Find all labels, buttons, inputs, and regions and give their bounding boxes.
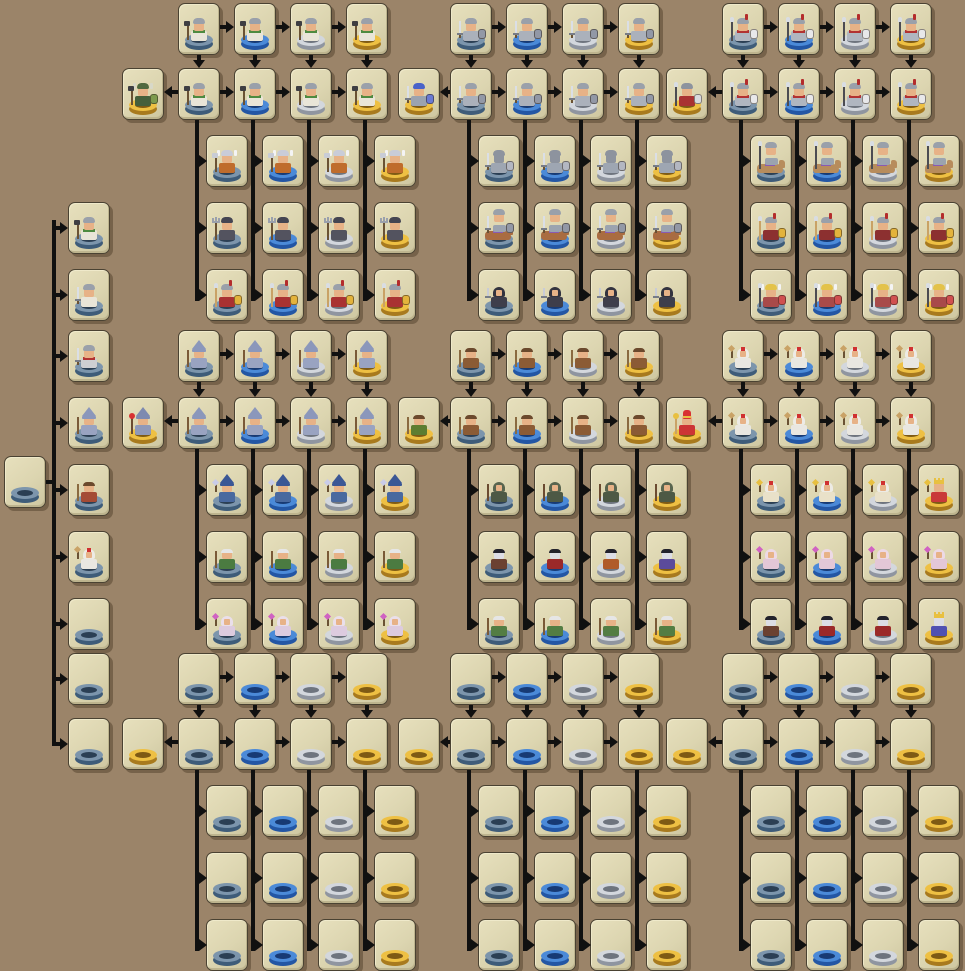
unit-card-cavalry[interactable] xyxy=(590,202,632,254)
empty-unit-card[interactable] xyxy=(806,852,848,904)
empty-unit-card[interactable] xyxy=(834,718,876,770)
unit-card-dark_trident[interactable] xyxy=(206,202,248,254)
unit-card-ranger[interactable] xyxy=(646,464,688,516)
unit-card-green_elder[interactable] xyxy=(318,531,360,583)
unit-card-druid[interactable] xyxy=(506,330,548,382)
weapon-staff xyxy=(571,417,573,434)
ring-hole xyxy=(903,687,919,693)
unit-card-valkyrie[interactable] xyxy=(750,269,792,321)
empty-unit-card[interactable] xyxy=(618,718,660,770)
unit-card-elder_druid[interactable] xyxy=(590,598,632,650)
unit-card-cleric[interactable] xyxy=(778,397,820,449)
empty-unit-card[interactable] xyxy=(590,785,632,837)
weapon-spear-tip xyxy=(674,82,678,87)
root-card[interactable] xyxy=(4,456,46,508)
arrowhead-d xyxy=(577,389,589,397)
unit-card-spearman[interactable] xyxy=(890,68,932,120)
empty-unit-card[interactable] xyxy=(478,919,520,971)
empty-unit-card[interactable] xyxy=(862,785,904,837)
empty-unit-card[interactable] xyxy=(68,653,110,705)
branch-line xyxy=(635,449,639,630)
unit-card-nun[interactable] xyxy=(806,531,848,583)
empty-unit-card[interactable] xyxy=(178,653,220,705)
unit-card-blue_knight[interactable] xyxy=(398,68,440,120)
empty-unit-card[interactable] xyxy=(450,718,492,770)
unit-card-wizard[interactable] xyxy=(68,397,110,449)
empty-unit-card[interactable] xyxy=(750,852,792,904)
unit-card-spearman[interactable] xyxy=(722,3,764,55)
empty-unit-card[interactable] xyxy=(562,653,604,705)
tier-ring-silver xyxy=(569,749,597,765)
tier-ring-gold xyxy=(381,816,409,832)
unit-sprite xyxy=(296,7,326,41)
tier-ring-gold xyxy=(673,749,701,765)
empty-unit-card[interactable] xyxy=(590,919,632,971)
unit-card-rogue[interactable] xyxy=(646,269,688,321)
unit-card-healer[interactable] xyxy=(262,598,304,650)
hair xyxy=(877,616,889,620)
unit-card-wizard[interactable] xyxy=(346,330,388,382)
empty-unit-card[interactable] xyxy=(206,919,248,971)
unit-card-spear_champion[interactable] xyxy=(666,68,708,120)
unit-body xyxy=(303,425,319,435)
arrowhead-r xyxy=(60,673,68,685)
unit-card-dark_trident[interactable] xyxy=(262,202,304,254)
unit-card-wizard[interactable] xyxy=(234,330,276,382)
weapon-wand-tip xyxy=(212,479,219,486)
unit-card-priest_king[interactable] xyxy=(918,464,960,516)
unit-card-swordsman[interactable] xyxy=(562,68,604,120)
unit-card-viking[interactable] xyxy=(234,68,276,120)
unit-card-swordsman[interactable] xyxy=(450,3,492,55)
unit-card-wizard[interactable] xyxy=(234,397,276,449)
unit-card-spearman[interactable] xyxy=(722,68,764,120)
empty-unit-card[interactable] xyxy=(918,919,960,971)
empty-unit-card[interactable] xyxy=(68,598,110,650)
empty-unit-card[interactable] xyxy=(374,852,416,904)
unit-body xyxy=(575,425,591,435)
arrowhead-r xyxy=(527,551,535,563)
arrowhead-r xyxy=(770,348,778,360)
empty-unit-card[interactable] xyxy=(478,852,520,904)
empty-unit-card[interactable] xyxy=(206,785,248,837)
weapon-trident-bar xyxy=(212,221,220,223)
unit-card-spartan[interactable] xyxy=(374,269,416,321)
unit-card-winged_viking[interactable] xyxy=(374,135,416,187)
unit-card-peasant[interactable] xyxy=(68,464,110,516)
empty-unit-card[interactable] xyxy=(918,785,960,837)
unit-card-high_priest[interactable] xyxy=(750,464,792,516)
shield xyxy=(290,295,298,305)
plume xyxy=(397,280,400,286)
unit-card-lancer[interactable] xyxy=(806,135,848,187)
arrowhead-l xyxy=(440,736,448,748)
unit-body xyxy=(819,559,835,569)
unit-card-high_priest[interactable] xyxy=(862,464,904,516)
unit-card-plate_knight[interactable] xyxy=(534,135,576,187)
empty-unit-card[interactable] xyxy=(290,653,332,705)
unit-body xyxy=(359,358,375,368)
unit-card-ranger[interactable] xyxy=(590,464,632,516)
unit-card-high_priest[interactable] xyxy=(806,464,848,516)
unit-card-valkyrie[interactable] xyxy=(918,269,960,321)
unit-card-rogue[interactable] xyxy=(534,269,576,321)
weapon-trident-prong xyxy=(268,218,270,221)
empty-unit-card[interactable] xyxy=(646,785,688,837)
unit-card-lancer[interactable] xyxy=(750,135,792,187)
unit-card-plate_knight[interactable] xyxy=(478,135,520,187)
empty-unit-card[interactable] xyxy=(346,653,388,705)
empty-unit-card[interactable] xyxy=(722,718,764,770)
empty-unit-card[interactable] xyxy=(778,718,820,770)
unit-card-viking[interactable] xyxy=(178,68,220,120)
unit-sprite xyxy=(324,535,354,569)
unit-card-swordsman[interactable] xyxy=(618,68,660,120)
unit-card-grove_keeper[interactable] xyxy=(398,397,440,449)
unit-sprite xyxy=(74,468,104,502)
empty-unit-card[interactable] xyxy=(346,718,388,770)
hat-brim xyxy=(248,416,262,419)
unit-card-spartan[interactable] xyxy=(206,269,248,321)
unit-card-rogue[interactable] xyxy=(590,269,632,321)
unit-card-viking[interactable] xyxy=(290,68,332,120)
unit-card-viking[interactable] xyxy=(346,68,388,120)
arrowhead-r xyxy=(199,289,207,301)
unit-body xyxy=(135,96,151,106)
tier-ring-silver xyxy=(325,816,353,832)
empty-unit-card[interactable] xyxy=(534,785,576,837)
weapon-axe-head xyxy=(380,153,386,158)
arrowhead-r xyxy=(255,289,263,301)
unit-card-druid[interactable] xyxy=(450,397,492,449)
unit-card-cleric[interactable] xyxy=(834,397,876,449)
empty-unit-card[interactable] xyxy=(262,852,304,904)
empty-unit-card[interactable] xyxy=(206,852,248,904)
unit-card-wizard[interactable] xyxy=(178,330,220,382)
unit-card-green_elder[interactable] xyxy=(262,531,304,583)
unit-card-wizard[interactable] xyxy=(290,330,332,382)
empty-unit-card[interactable] xyxy=(806,785,848,837)
empty-unit-card[interactable] xyxy=(646,852,688,904)
empty-unit-card[interactable] xyxy=(618,653,660,705)
weapon-spear xyxy=(787,21,789,41)
unit-card-rogue[interactable] xyxy=(478,269,520,321)
weapon-sword-grip xyxy=(487,167,489,170)
unit-card-hoplite[interactable] xyxy=(862,202,904,254)
unit-card-cleric[interactable] xyxy=(778,330,820,382)
unit-sprite xyxy=(868,602,898,636)
empty-unit-card[interactable] xyxy=(506,718,548,770)
arrowhead-d xyxy=(465,60,477,68)
empty-unit-card[interactable] xyxy=(234,653,276,705)
unit-card-spearman[interactable] xyxy=(778,68,820,120)
unit-card-hoplite[interactable] xyxy=(806,202,848,254)
empty-unit-card[interactable] xyxy=(478,785,520,837)
empty-unit-card[interactable] xyxy=(450,653,492,705)
tier-ring-bright-blue xyxy=(269,883,297,899)
unit-card-cavalry[interactable] xyxy=(534,202,576,254)
ring-hole xyxy=(303,752,319,758)
arrowhead-d xyxy=(249,60,261,68)
hat-brim xyxy=(332,483,346,486)
unit-card-swordsman[interactable] xyxy=(450,68,492,120)
unit-card-cleric[interactable] xyxy=(890,330,932,382)
unit-card-nun[interactable] xyxy=(918,531,960,583)
ring-hole xyxy=(603,953,619,959)
empty-unit-card[interactable] xyxy=(234,718,276,770)
unit-card-swordsman[interactable] xyxy=(506,3,548,55)
unit-card-plate_knight[interactable] xyxy=(646,135,688,187)
unit-card-ranger[interactable] xyxy=(478,464,520,516)
unit-card-spearman[interactable] xyxy=(834,3,876,55)
weapon-staff xyxy=(543,484,545,501)
unit-card-lancer[interactable] xyxy=(862,135,904,187)
unit-sprite xyxy=(812,602,842,636)
weapon-spear-tip xyxy=(786,17,790,22)
unit-card-viking[interactable] xyxy=(234,3,276,55)
unit-card-elder_druid[interactable] xyxy=(478,598,520,650)
empty-unit-card[interactable] xyxy=(262,785,304,837)
weapon-dagger-guard xyxy=(597,296,603,298)
weapon-spear-tip xyxy=(870,141,874,146)
unit-card-spartan[interactable] xyxy=(318,269,360,321)
shield xyxy=(618,223,626,233)
empty-unit-card[interactable] xyxy=(666,718,708,770)
unit-card-healer[interactable] xyxy=(206,598,248,650)
arrowhead-r xyxy=(311,222,319,234)
unit-sprite xyxy=(296,401,326,435)
helmet xyxy=(549,150,561,156)
unit-card-viking[interactable] xyxy=(178,3,220,55)
ring-hole xyxy=(275,886,291,892)
branch-line xyxy=(195,449,199,630)
unit-card-cleric[interactable] xyxy=(68,531,110,583)
weapon-spear-tip xyxy=(926,283,930,288)
unit-sprite xyxy=(868,468,898,502)
unit-card-vamp_red[interactable] xyxy=(806,598,848,650)
unit-body xyxy=(659,626,675,636)
tier-ring-slate-blue xyxy=(185,749,213,765)
unit-body xyxy=(463,425,479,435)
arrowhead-r xyxy=(311,155,319,167)
empty-unit-card[interactable] xyxy=(890,718,932,770)
arrowhead-r xyxy=(882,348,890,360)
branch-line xyxy=(363,449,367,630)
ring-hole xyxy=(359,752,375,758)
unit-body xyxy=(331,559,347,569)
unit-card-vamp_brown[interactable] xyxy=(750,598,792,650)
unit-card-viking[interactable] xyxy=(290,3,332,55)
empty-unit-card[interactable] xyxy=(562,718,604,770)
unit-card-healer[interactable] xyxy=(374,598,416,650)
tier-ring-bright-blue xyxy=(541,816,569,832)
weapon-staff xyxy=(459,350,461,367)
unit-card-druid[interactable] xyxy=(562,397,604,449)
empty-unit-card[interactable] xyxy=(806,919,848,971)
empty-unit-card[interactable] xyxy=(122,718,164,770)
empty-unit-card[interactable] xyxy=(534,919,576,971)
unit-card-vamp_red[interactable] xyxy=(534,531,576,583)
ring-hole xyxy=(819,886,835,892)
unit-card-vamp_brown[interactable] xyxy=(478,531,520,583)
weapon-sword-grip xyxy=(77,301,79,304)
unit-body xyxy=(735,425,751,435)
empty-unit-card[interactable] xyxy=(590,852,632,904)
unit-card-witch[interactable] xyxy=(206,464,248,516)
empty-unit-card[interactable] xyxy=(890,653,932,705)
empty-unit-card[interactable] xyxy=(374,919,416,971)
empty-unit-card[interactable] xyxy=(750,785,792,837)
hair xyxy=(83,482,95,486)
arrowhead-r xyxy=(199,618,207,630)
unit-card-vamp_orange[interactable] xyxy=(590,531,632,583)
unit-card-witch[interactable] xyxy=(374,464,416,516)
unit-card-winged_viking[interactable] xyxy=(318,135,360,187)
empty-unit-card[interactable] xyxy=(834,653,876,705)
weapon-spear xyxy=(271,287,273,307)
empty-unit-card[interactable] xyxy=(534,852,576,904)
helmet xyxy=(661,209,673,215)
unit-card-green_elder[interactable] xyxy=(206,531,248,583)
unit-card-archmage[interactable] xyxy=(122,397,164,449)
unit-card-plate_knight[interactable] xyxy=(590,135,632,187)
unit-card-vamp_red[interactable] xyxy=(862,598,904,650)
unit-card-pope[interactable] xyxy=(666,397,708,449)
unit-sprite xyxy=(672,401,702,435)
hat-cone xyxy=(136,407,150,416)
unit-card-spearman[interactable] xyxy=(834,68,876,120)
ring-hole xyxy=(135,752,151,758)
unit-card-spearman[interactable] xyxy=(890,3,932,55)
unit-card-elder_druid[interactable] xyxy=(646,598,688,650)
unit-card-druid[interactable] xyxy=(618,330,660,382)
unit-body xyxy=(659,559,675,569)
unit-card-militia_sword[interactable] xyxy=(68,269,110,321)
unit-card-elder_druid[interactable] xyxy=(534,598,576,650)
empty-unit-card[interactable] xyxy=(862,919,904,971)
unit-card-nun[interactable] xyxy=(750,531,792,583)
unit-card-healer[interactable] xyxy=(318,598,360,650)
unit-body xyxy=(603,626,619,636)
unit-card-cleric[interactable] xyxy=(722,330,764,382)
empty-unit-card[interactable] xyxy=(290,718,332,770)
unit-card-hoplite[interactable] xyxy=(918,202,960,254)
empty-unit-card[interactable] xyxy=(178,718,220,770)
unit-card-cleric[interactable] xyxy=(722,397,764,449)
helmet xyxy=(333,217,345,223)
empty-unit-card[interactable] xyxy=(918,852,960,904)
empty-unit-card[interactable] xyxy=(68,718,110,770)
unit-card-druid[interactable] xyxy=(562,330,604,382)
unit-card-witch[interactable] xyxy=(262,464,304,516)
unit-card-soldier[interactable] xyxy=(68,330,110,382)
empty-unit-card[interactable] xyxy=(778,653,820,705)
unit-card-valkyrie[interactable] xyxy=(862,269,904,321)
weapon-spear-tip xyxy=(270,283,274,288)
unit-card-druid[interactable] xyxy=(450,330,492,382)
unit-sprite xyxy=(812,535,842,569)
unit-card-wizard[interactable] xyxy=(290,397,332,449)
unit-card-winged_viking[interactable] xyxy=(206,135,248,187)
hat-brim xyxy=(82,416,96,419)
unit-card-spearman[interactable] xyxy=(778,3,820,55)
unit-card-viking[interactable] xyxy=(68,202,110,254)
unit-sprite xyxy=(352,7,382,41)
empty-unit-card[interactable] xyxy=(398,718,440,770)
arrowhead-r xyxy=(282,21,290,33)
tier-ring-slate-blue xyxy=(11,487,39,503)
empty-unit-card[interactable] xyxy=(862,852,904,904)
shield xyxy=(750,94,758,104)
unit-card-witch[interactable] xyxy=(318,464,360,516)
unit-body xyxy=(191,358,207,368)
unit-card-druid[interactable] xyxy=(506,397,548,449)
empty-unit-card[interactable] xyxy=(318,919,360,971)
unit-card-cleric[interactable] xyxy=(834,330,876,382)
unit-card-wizard[interactable] xyxy=(178,397,220,449)
unit-card-druid[interactable] xyxy=(618,397,660,449)
unit-card-viking[interactable] xyxy=(346,3,388,55)
unit-sprite xyxy=(784,334,814,368)
unit-card-vamp_purple[interactable] xyxy=(646,531,688,583)
unit-card-winged_viking[interactable] xyxy=(262,135,304,187)
hood-cross xyxy=(87,548,91,552)
unit-card-spartan[interactable] xyxy=(262,269,304,321)
unit-card-valkyrie[interactable] xyxy=(806,269,848,321)
empty-unit-card[interactable] xyxy=(750,919,792,971)
unit-sprite xyxy=(512,72,542,106)
unit-card-swordsman[interactable] xyxy=(562,3,604,55)
ring-hole xyxy=(519,752,535,758)
shield xyxy=(534,29,542,39)
helmet xyxy=(877,142,889,148)
weapon-axe-head xyxy=(352,86,358,91)
unit-sprite xyxy=(324,468,354,502)
empty-unit-card[interactable] xyxy=(262,919,304,971)
unit-card-nun[interactable] xyxy=(862,531,904,583)
arrowhead-d xyxy=(249,710,261,718)
branch-line xyxy=(523,449,527,630)
empty-unit-card[interactable] xyxy=(646,919,688,971)
unit-card-dark_trident[interactable] xyxy=(318,202,360,254)
unit-card-vamp_royal[interactable] xyxy=(918,598,960,650)
unit-card-cavalry[interactable] xyxy=(646,202,688,254)
unit-card-swordsman[interactable] xyxy=(618,3,660,55)
unit-sprite xyxy=(404,72,434,106)
unit-card-swordsman[interactable] xyxy=(506,68,548,120)
unit-card-cleric[interactable] xyxy=(890,397,932,449)
unit-card-dark_trident[interactable] xyxy=(374,202,416,254)
unit-card-lancer[interactable] xyxy=(918,135,960,187)
unit-card-cavalry[interactable] xyxy=(478,202,520,254)
unit-card-ranger[interactable] xyxy=(534,464,576,516)
arrowhead-r xyxy=(60,417,68,429)
empty-unit-card[interactable] xyxy=(506,653,548,705)
shield xyxy=(346,295,354,305)
empty-unit-card[interactable] xyxy=(374,785,416,837)
unit-face xyxy=(86,552,92,558)
unit-body xyxy=(631,425,647,435)
empty-unit-card[interactable] xyxy=(318,852,360,904)
shield xyxy=(618,161,626,171)
empty-unit-card[interactable] xyxy=(318,785,360,837)
arrowhead-r xyxy=(471,805,479,817)
unit-card-hoplite[interactable] xyxy=(750,202,792,254)
unit-card-viking_chief[interactable] xyxy=(122,68,164,120)
unit-card-wizard[interactable] xyxy=(346,397,388,449)
unit-card-green_elder[interactable] xyxy=(374,531,416,583)
empty-unit-card[interactable] xyxy=(722,653,764,705)
